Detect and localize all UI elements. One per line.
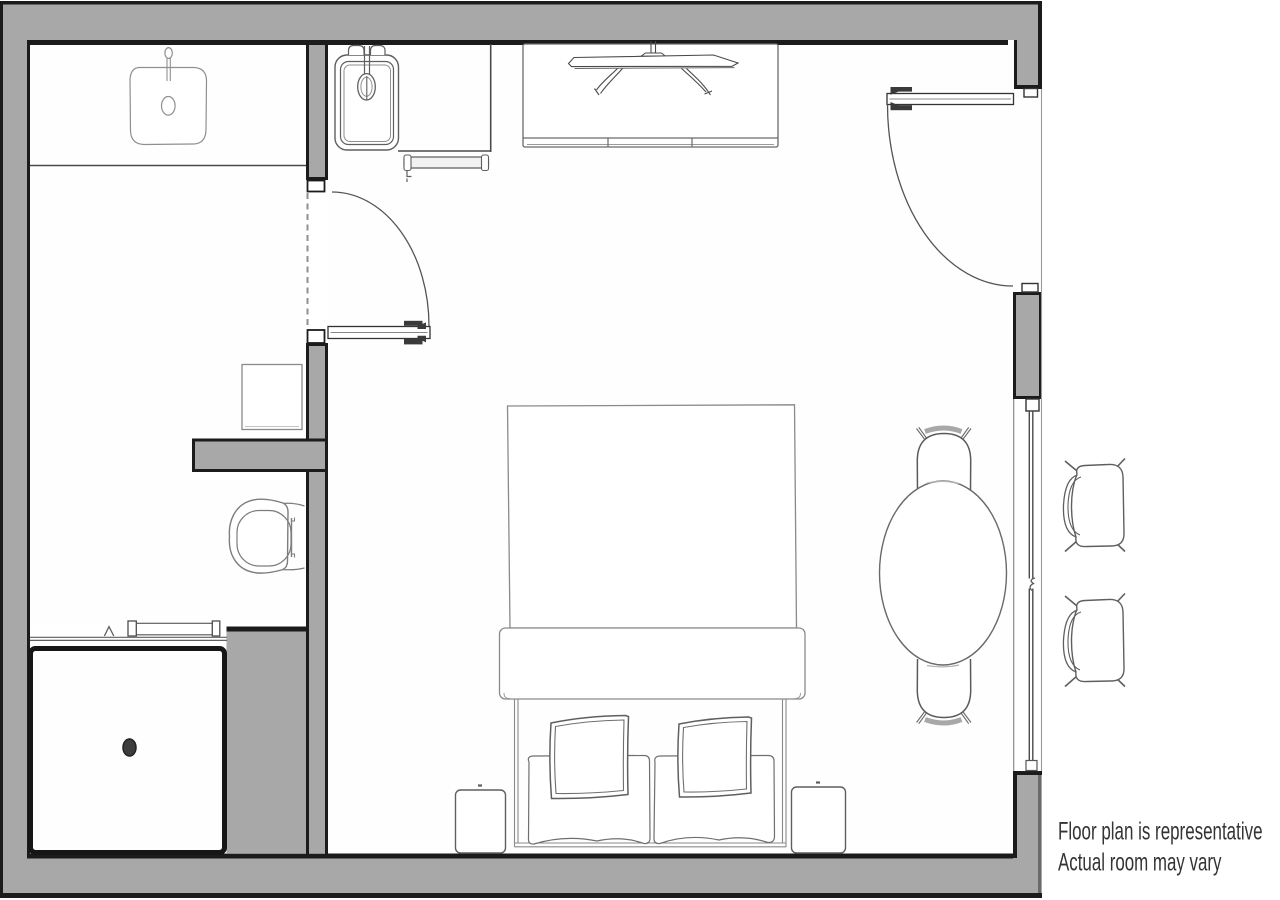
svg-text:Floor plan is representative: Floor plan is representative <box>1058 818 1263 846</box>
svg-text:Actual room may vary: Actual room may vary <box>1058 849 1222 877</box>
